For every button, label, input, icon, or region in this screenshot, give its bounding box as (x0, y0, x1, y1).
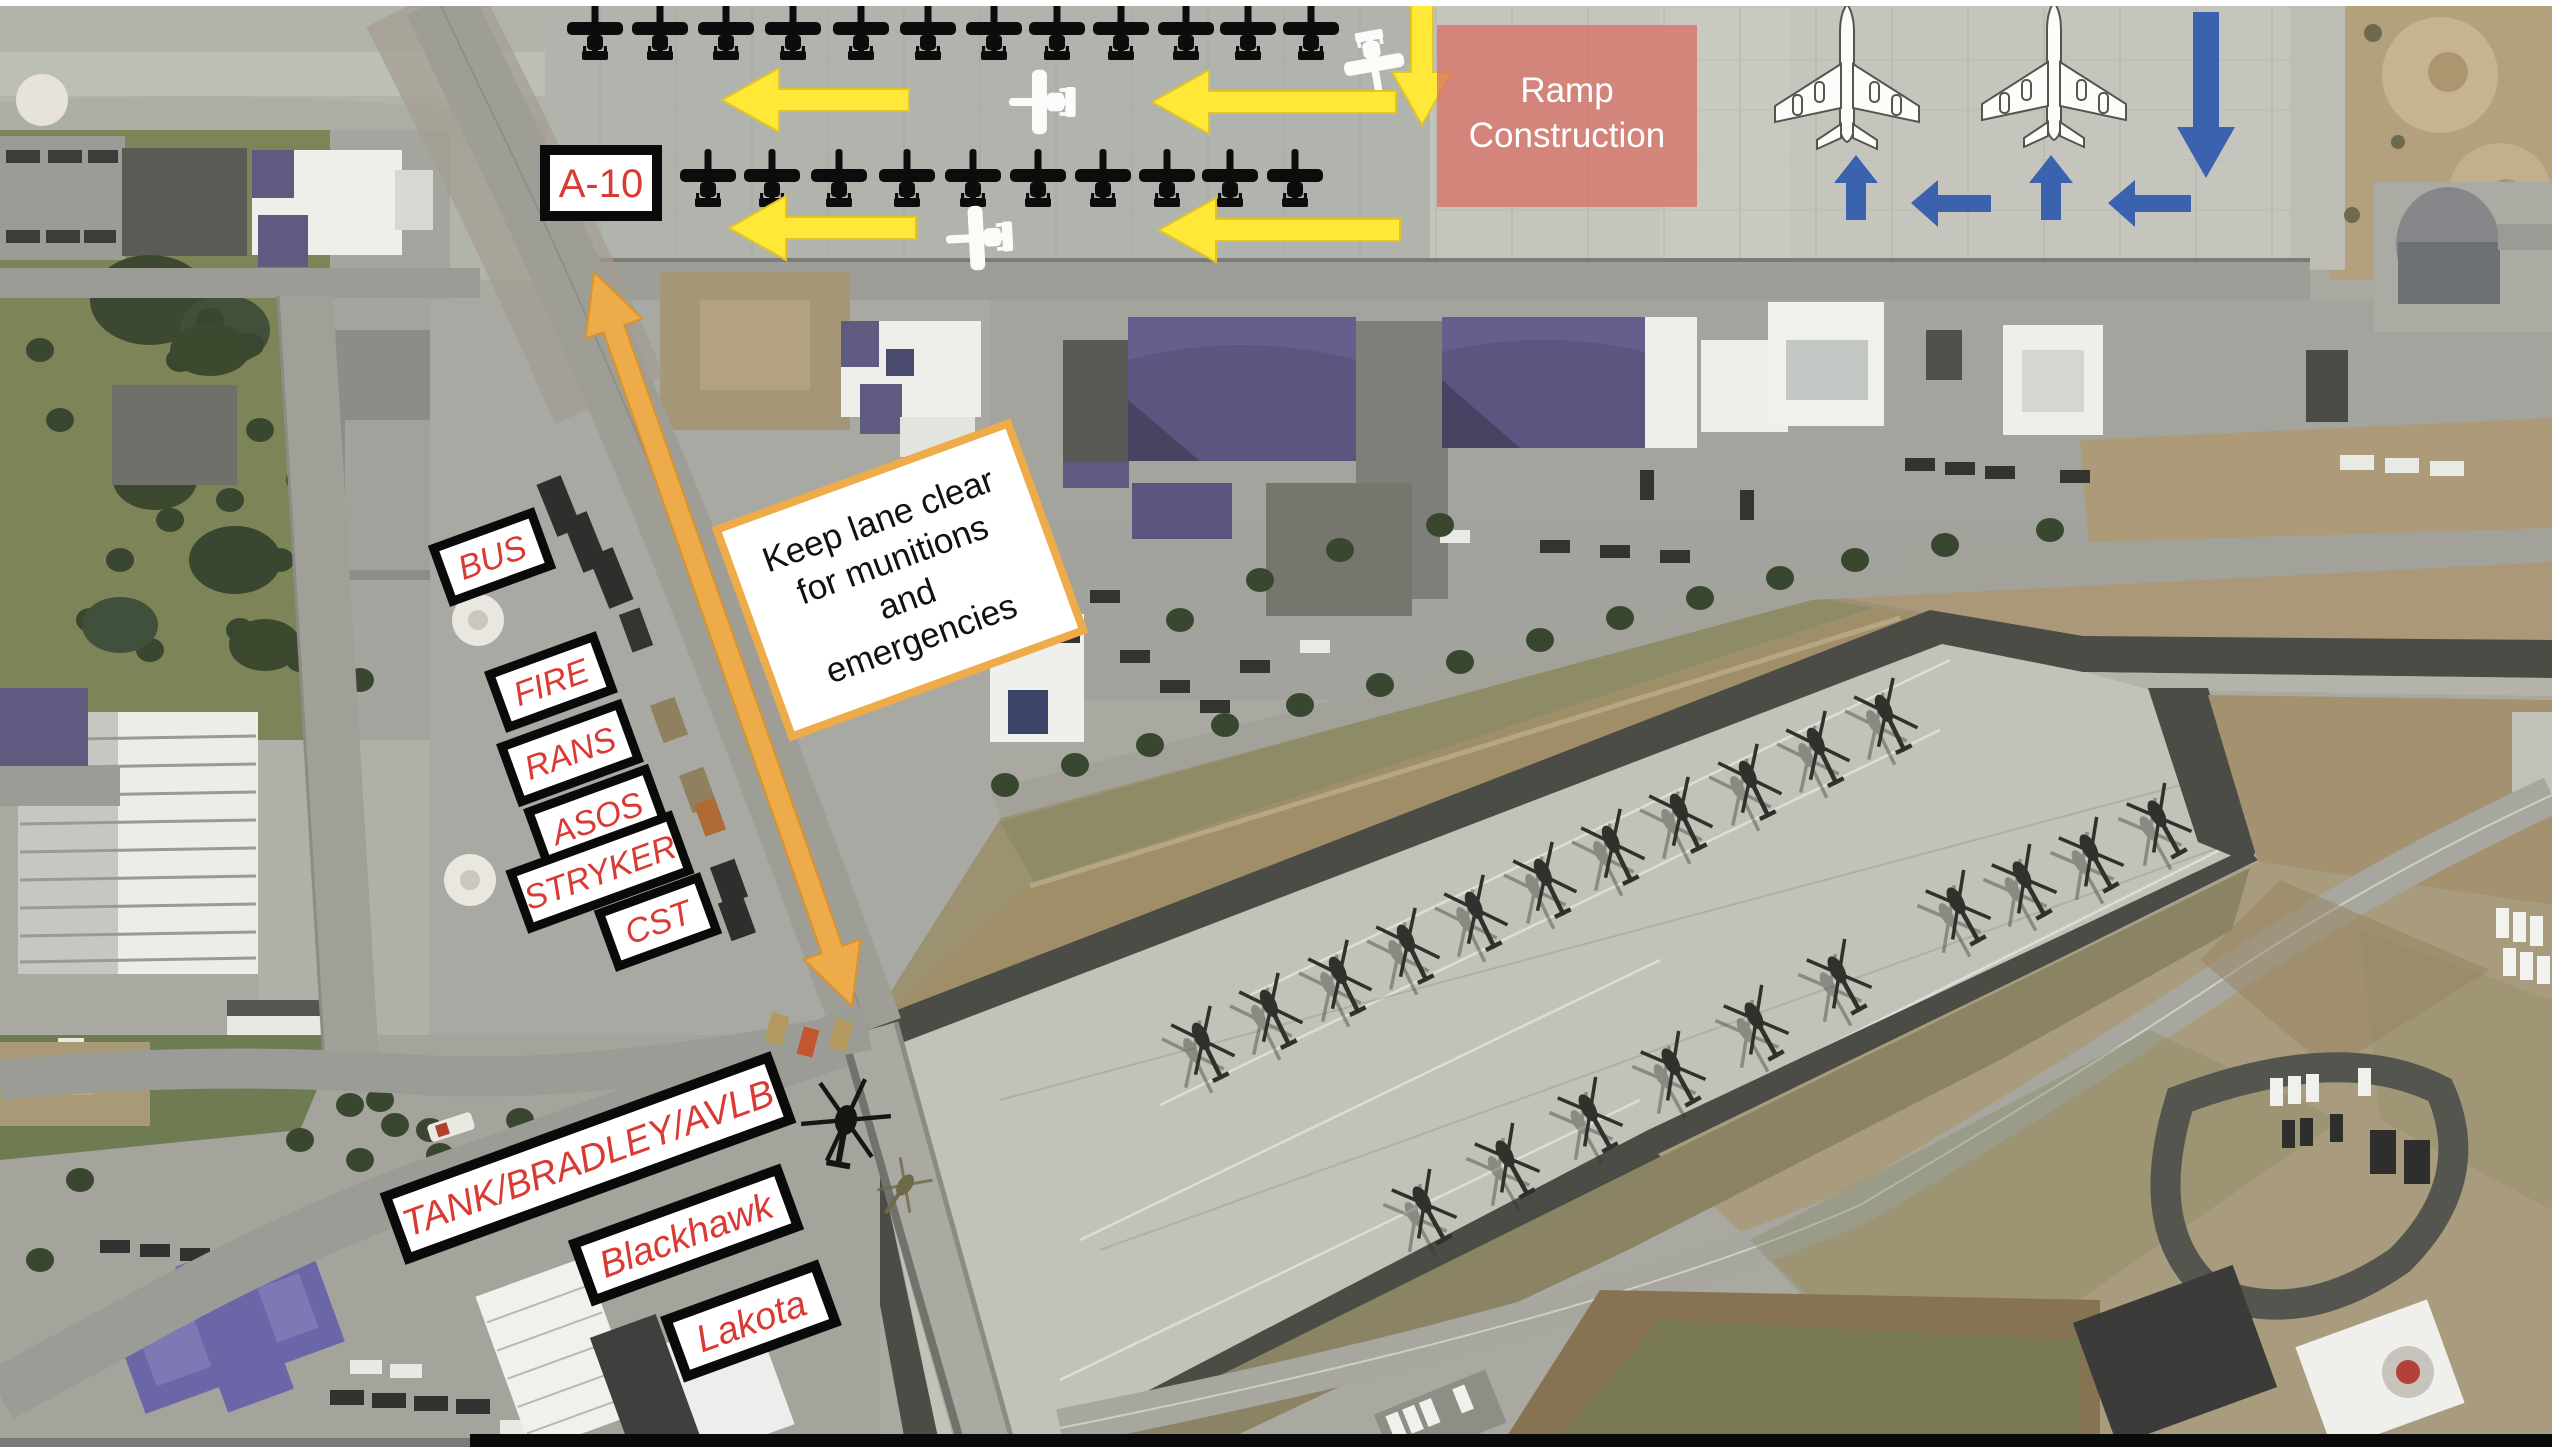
svg-text:A-10: A-10 (559, 162, 644, 206)
svg-text:Ramp: Ramp (1520, 71, 1613, 110)
svg-text:Construction: Construction (1469, 116, 1665, 155)
